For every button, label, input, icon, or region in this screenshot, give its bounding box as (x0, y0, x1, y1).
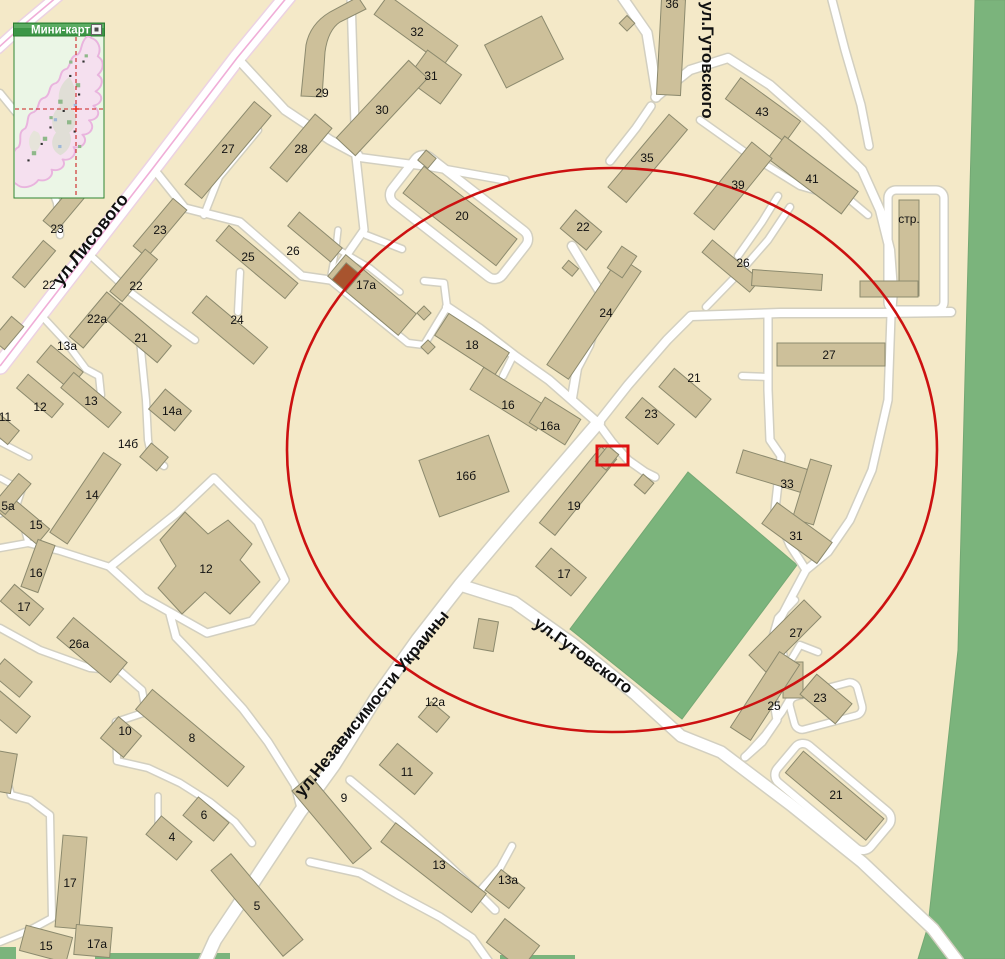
svg-text:15: 15 (29, 518, 43, 532)
svg-text:19: 19 (567, 499, 581, 513)
svg-text:27: 27 (221, 142, 235, 156)
svg-text:17а: 17а (87, 937, 107, 951)
svg-text:18: 18 (465, 338, 479, 352)
svg-text:6: 6 (201, 808, 208, 822)
svg-text:15: 15 (39, 939, 53, 953)
svg-text:17: 17 (557, 567, 571, 581)
svg-text:5а: 5а (1, 499, 15, 513)
svg-text:23: 23 (153, 223, 167, 237)
svg-text:25: 25 (241, 250, 255, 264)
svg-text:22а: 22а (87, 312, 107, 326)
svg-text:25: 25 (767, 699, 781, 713)
svg-text:27: 27 (789, 626, 803, 640)
svg-text:33: 33 (780, 477, 794, 491)
svg-text:29: 29 (315, 86, 329, 100)
svg-text:24: 24 (230, 313, 244, 327)
svg-text:20: 20 (455, 209, 469, 223)
svg-text:13: 13 (84, 394, 98, 408)
svg-text:22: 22 (129, 279, 143, 293)
svg-text:31: 31 (424, 69, 438, 83)
svg-text:17: 17 (17, 600, 31, 614)
svg-text:36: 36 (665, 0, 679, 11)
svg-text:26а: 26а (69, 637, 89, 651)
svg-text:12: 12 (199, 562, 213, 576)
svg-text:26: 26 (736, 256, 750, 270)
svg-text:стр.: стр. (898, 212, 920, 226)
svg-text:5: 5 (254, 899, 261, 913)
svg-text:14б: 14б (118, 437, 138, 451)
svg-text:21: 21 (829, 788, 843, 802)
svg-text:11: 11 (0, 410, 12, 424)
svg-text:4: 4 (169, 830, 176, 844)
svg-text:30: 30 (375, 103, 389, 117)
svg-text:13а: 13а (498, 873, 518, 887)
svg-text:9: 9 (341, 791, 348, 805)
svg-text:39: 39 (731, 178, 745, 192)
svg-text:11: 11 (401, 765, 414, 779)
svg-text:10: 10 (118, 724, 132, 738)
svg-text:13а: 13а (57, 339, 77, 353)
svg-text:17: 17 (63, 876, 77, 890)
svg-text:21: 21 (687, 371, 701, 385)
svg-text:12: 12 (33, 400, 47, 414)
svg-text:16б: 16б (456, 469, 476, 483)
svg-text:13: 13 (432, 858, 446, 872)
svg-text:14: 14 (85, 488, 99, 502)
svg-text:27: 27 (822, 348, 836, 362)
svg-text:41: 41 (805, 172, 819, 186)
svg-text:24: 24 (599, 306, 613, 320)
svg-text:23: 23 (644, 407, 658, 421)
svg-text:22: 22 (42, 278, 56, 292)
svg-text:28: 28 (294, 142, 308, 156)
svg-text:35: 35 (640, 151, 654, 165)
svg-text:26: 26 (286, 244, 300, 258)
svg-text:23: 23 (813, 691, 827, 705)
svg-text:16а: 16а (540, 419, 560, 433)
svg-text:31: 31 (789, 529, 803, 543)
svg-text:14а: 14а (162, 404, 182, 418)
svg-text:16: 16 (29, 566, 43, 580)
svg-text:43: 43 (755, 105, 769, 119)
svg-text:16: 16 (501, 398, 515, 412)
svg-text:12а: 12а (425, 695, 445, 709)
svg-text:8: 8 (189, 731, 196, 745)
svg-text:Мини-карт: Мини-карт (31, 25, 91, 37)
svg-text:ул.Гутовского: ул.Гутовского (698, 1, 717, 118)
svg-text:21: 21 (134, 331, 148, 345)
svg-text:23: 23 (50, 222, 64, 236)
svg-text:22: 22 (576, 220, 590, 234)
svg-text:32: 32 (410, 25, 424, 39)
svg-text:17а: 17а (356, 278, 376, 292)
